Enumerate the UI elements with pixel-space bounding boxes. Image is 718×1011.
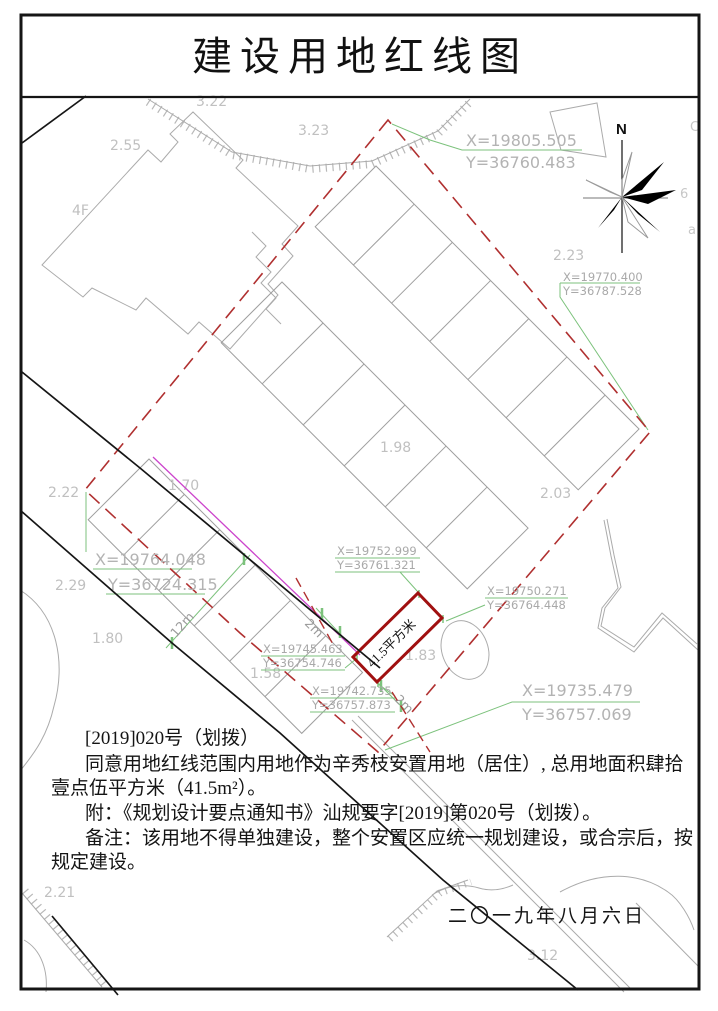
- coordinate-x: X=19745.463: [263, 642, 343, 656]
- edge-glyph: 6: [680, 187, 688, 202]
- notes-line: 附：《规划设计要点通知书》汕规要字[2019]第020号（划拨）。: [85, 802, 601, 824]
- elevation-label: 2.29: [55, 578, 86, 594]
- elevation-label: 2.55: [110, 138, 141, 154]
- notes-line: 备注：该用地不得单独建设，整个安置区应统一规划建设，或合宗后，按: [85, 827, 693, 849]
- road-edge-top-left: [22, 96, 86, 143]
- strip-upper: [315, 166, 639, 490]
- contour-near-date: [432, 885, 513, 895]
- elevation-label: 1.98: [380, 440, 411, 456]
- notes-block: [2019]020号（划拨） 同意用地红线范围内用地作为辛秀枝安置用地（居住）,…: [51, 727, 693, 873]
- notes-line: 规定建设。: [51, 851, 146, 873]
- drawing-sheet: 3.22 2.55 3.23 4F 2.23 1.98 2.03 2.22 1.…: [0, 0, 718, 1011]
- coordinate-y: Y=36760.483: [465, 153, 576, 172]
- elevation-label: 2.23: [553, 248, 584, 264]
- elevation-label: 1.80: [92, 631, 123, 647]
- coordinate-x: X=19742.735: [312, 684, 392, 698]
- road-edge-upper: [22, 372, 380, 668]
- contour-left: [20, 590, 59, 770]
- building-steps: [252, 232, 281, 324]
- coordinate-y: Y=36764.448: [486, 598, 566, 612]
- coordinate-y: Y=36761.321: [336, 558, 416, 572]
- contour-left-low: [24, 940, 46, 992]
- leader-p2: [560, 283, 648, 430]
- north-compass: N: [583, 121, 676, 253]
- coordinate-x: X=19750.271: [487, 584, 567, 598]
- north-label: N: [616, 121, 627, 138]
- notes-line: 同意用地红线范围内用地作为辛秀枝安置用地（居住）, 总用地面积肆拾: [85, 753, 684, 775]
- elevation-label: 2.21: [44, 885, 75, 901]
- elevation-label: 3.23: [298, 123, 329, 139]
- tick-marks-bottom-left: [25, 891, 105, 985]
- road-edge-bottom-left: [52, 916, 118, 995]
- coordinate-y: Y=36754.746: [262, 656, 342, 670]
- edge-glyph: a: [688, 223, 696, 238]
- coordinate-y: Y=36787.528: [562, 284, 642, 298]
- coordinate-x: X=19770.400: [563, 270, 643, 284]
- date-label: 二〇一九年八月六日: [448, 905, 646, 927]
- elevation-label: 2.22: [48, 485, 79, 501]
- sheet-title: 建设用地红线图: [192, 34, 528, 79]
- coordinate-x: X=19752.999: [337, 544, 417, 558]
- notes-line: 壹点伍平方米（41.5m²）。: [51, 777, 266, 799]
- wall-line-b: [601, 519, 697, 647]
- elevation-label: 2.03: [540, 486, 571, 502]
- floors-label: 4F: [72, 203, 89, 219]
- coordinate-x: X=19735.479: [522, 681, 633, 700]
- coordinate-x: X=19805.505: [466, 131, 577, 150]
- strip-middle: [221, 282, 528, 589]
- coordinate-x: X=19764.048: [95, 550, 206, 569]
- building-outline: [42, 112, 298, 349]
- notes-line: [2019]020号（划拨）: [85, 727, 259, 749]
- red-line-map: 3.22 2.55 3.23 4F 2.23 1.98 2.03 2.22 1.…: [0, 0, 718, 1011]
- parcel-41-5: 41.5平方米: [353, 593, 442, 682]
- coordinate-y: Y=36724.315: [107, 575, 218, 594]
- coordinate-y: Y=36757.873: [311, 698, 391, 712]
- coordinate-y: Y=36757.069: [521, 705, 632, 724]
